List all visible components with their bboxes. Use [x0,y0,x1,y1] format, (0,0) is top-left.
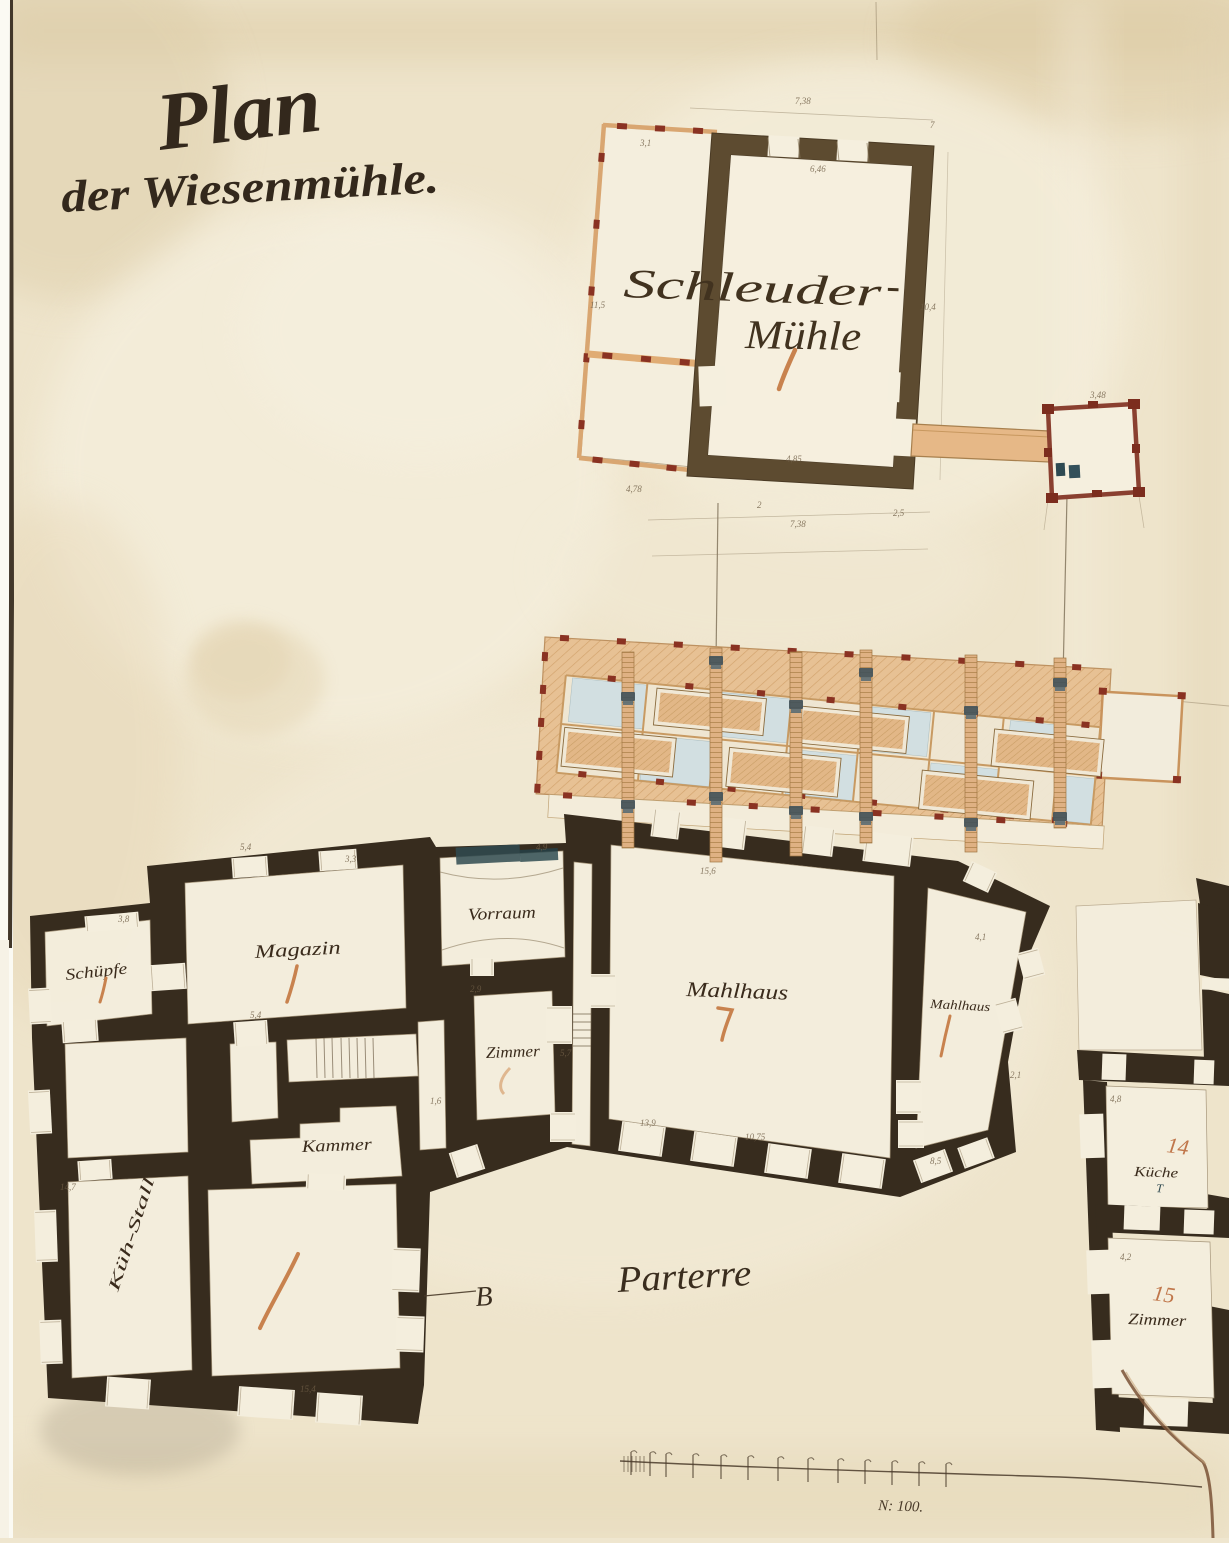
svg-text:Zimmer: Zimmer [486,1043,541,1062]
svg-text:3,48: 3,48 [1089,390,1106,400]
svg-text:B: B [474,1281,493,1313]
svg-text:-: - [886,262,901,308]
svg-text:4,2: 4,2 [1120,1252,1132,1262]
svg-text:4,85: 4,85 [786,454,802,464]
svg-text:14: 14 [1165,1132,1190,1160]
svg-text:7,38: 7,38 [795,96,811,106]
svg-text:2,9: 2,9 [470,984,482,994]
svg-text:2: 2 [757,500,762,510]
svg-text:15: 15 [1151,1280,1176,1308]
svg-text:7: 7 [930,120,935,130]
svg-text:2,5: 2,5 [893,508,905,518]
svg-text:3,1: 3,1 [639,138,651,148]
svg-text:Kammer: Kammer [300,1135,372,1156]
svg-text:10,75: 10,75 [745,1132,766,1142]
svg-text:8,5: 8,5 [930,1156,942,1166]
svg-text:15,6: 15,6 [700,866,716,876]
svg-text:Mahlhaus: Mahlhaus [929,996,991,1014]
svg-text:15,4: 15,4 [300,1384,316,1394]
svg-text:Mahlhaus: Mahlhaus [685,977,789,1005]
svg-text:Zimmer: Zimmer [1128,1311,1187,1330]
svg-text:5,7: 5,7 [560,1048,572,1058]
svg-text:Parterre: Parterre [615,1253,752,1301]
svg-text:4,8: 4,8 [1110,1094,1122,1104]
svg-text:6,46: 6,46 [810,164,826,174]
svg-text:1,6: 1,6 [430,1096,442,1106]
svg-text:4,9: 4,9 [536,842,548,852]
svg-text:Schleuder: Schleuder [623,260,884,315]
svg-text:Küche: Küche [1133,1165,1179,1182]
svg-text:Vorraum: Vorraum [467,903,536,924]
svg-text:7,38: 7,38 [790,519,806,529]
svg-text:14,7: 14,7 [60,1182,76,1192]
svg-text:5,4: 5,4 [240,842,252,852]
svg-text:2,1: 2,1 [1010,1070,1021,1080]
svg-text:10,4: 10,4 [920,302,936,312]
svg-text:5,4: 5,4 [250,1010,262,1020]
svg-text:Mühle: Mühle [744,311,862,359]
svg-text:13,9: 13,9 [640,1118,656,1128]
svg-text:3,3: 3,3 [344,854,357,864]
svg-text:N: 100.: N: 100. [877,1498,924,1516]
svg-text:4,78: 4,78 [626,484,642,494]
svg-text:3,8: 3,8 [117,914,130,924]
svg-text:11,5: 11,5 [590,300,606,310]
svg-text:4,1: 4,1 [975,932,986,942]
